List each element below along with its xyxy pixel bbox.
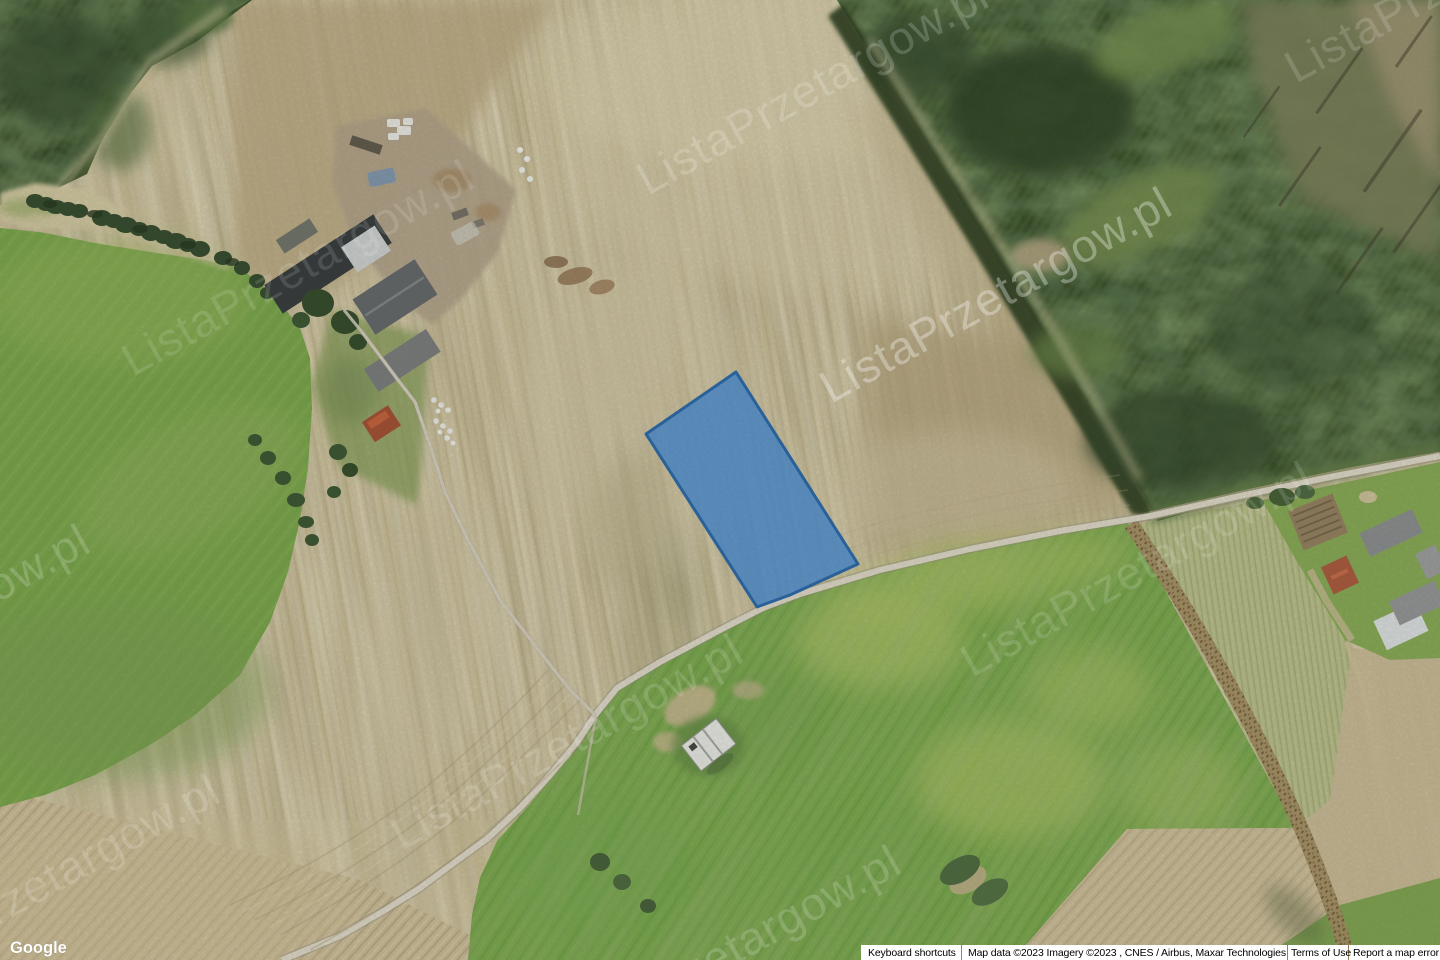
svg-text:Google: Google <box>10 939 67 957</box>
svg-text:Terms of Use: Terms of Use <box>1291 947 1351 959</box>
svg-text:Report a map error: Report a map error <box>1353 947 1440 959</box>
svg-text:Map data ©2023 Imagery ©2023 ,: Map data ©2023 Imagery ©2023 , CNES / Ai… <box>968 947 1286 959</box>
svg-text:Keyboard shortcuts: Keyboard shortcuts <box>868 947 956 959</box>
